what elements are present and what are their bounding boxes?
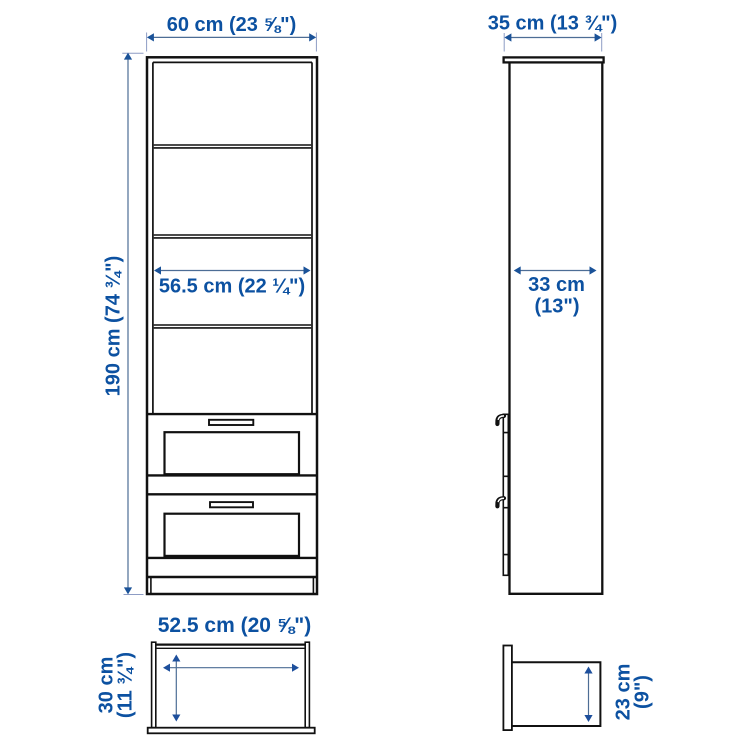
svg-text:(9"): (9")	[632, 675, 654, 709]
svg-text:35 cm (13 ¾"): 35 cm (13 ¾")	[488, 13, 618, 35]
svg-text:56.5 cm (22 ¼"): 56.5 cm (22 ¼")	[159, 275, 305, 297]
svg-text:(11 ¾"): (11 ¾")	[115, 652, 137, 718]
svg-text:52.5 cm (20 ⅝"): 52.5 cm (20 ⅝")	[158, 614, 312, 637]
svg-text:(13"): (13")	[534, 295, 579, 317]
svg-text:190 cm (74 ¾"): 190 cm (74 ¾")	[102, 256, 124, 397]
svg-text:33 cm: 33 cm	[528, 274, 585, 296]
svg-text:60 cm (23 ⅝"): 60 cm (23 ⅝")	[167, 14, 297, 36]
